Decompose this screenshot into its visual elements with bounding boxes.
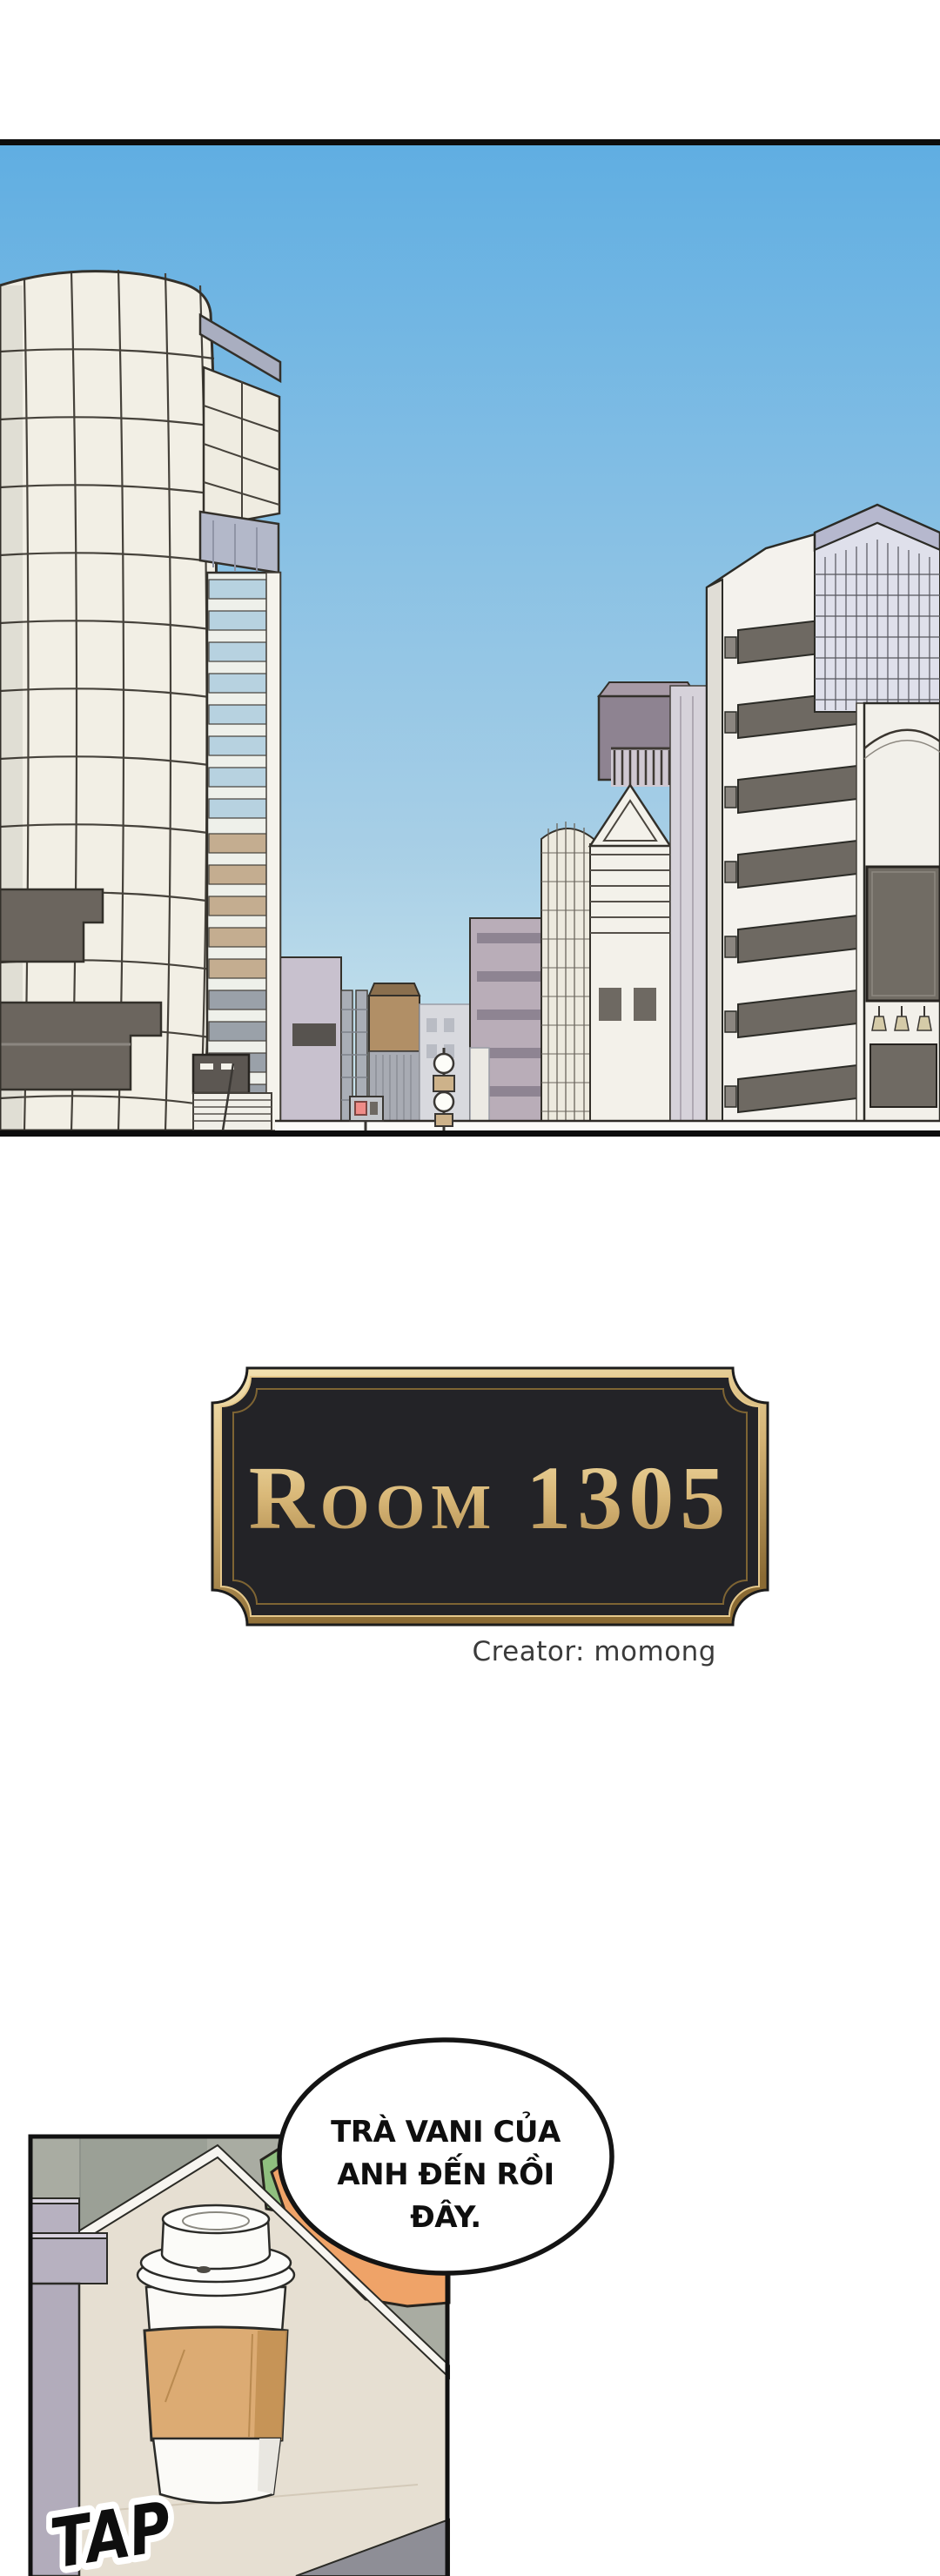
cylinder-building [541, 822, 594, 1130]
bubble-line: ANH ĐẾN RỒI [285, 2154, 607, 2197]
billboard-building [864, 703, 940, 1130]
midrise-window [292, 1023, 336, 1046]
panel-border-top [0, 139, 940, 145]
bubble-line: ĐÂY. [285, 2197, 607, 2239]
glass-corner-tower [815, 505, 940, 712]
sfx-tap-wrap: TAP [24, 2479, 251, 2576]
bubble-line: TRÀ VANI CỦA [285, 2111, 607, 2154]
street [275, 1121, 940, 1130]
plaque-title: Room 1305 [210, 1438, 770, 1560]
city-panel [0, 139, 940, 1137]
street-lamp-pole [433, 1048, 454, 1130]
sleeve-shade [254, 2331, 287, 2440]
panel-border-bottom [0, 1130, 940, 1137]
curved-tower [0, 270, 218, 1130]
speech-bubble-text: TRÀ VANI CỦA ANH ĐẾN RỒI ĐÂY. [285, 2111, 607, 2239]
lid-sip-hole [197, 2266, 211, 2273]
striped-tower [207, 573, 280, 1130]
cafe-panel [0, 1915, 940, 2576]
creator-credit: Creator: momong [316, 1636, 716, 1667]
sfx-tap: TAP [46, 2488, 177, 2576]
white-block [470, 1048, 489, 1130]
webtoon-page: Room 1305 Creator: momong [0, 0, 940, 2576]
coffee-cup [138, 2205, 294, 2503]
pediment-building [590, 785, 670, 1130]
billboard [867, 867, 940, 1001]
narrow-facade [670, 686, 707, 1130]
lower-sign-panel [870, 1044, 937, 1107]
